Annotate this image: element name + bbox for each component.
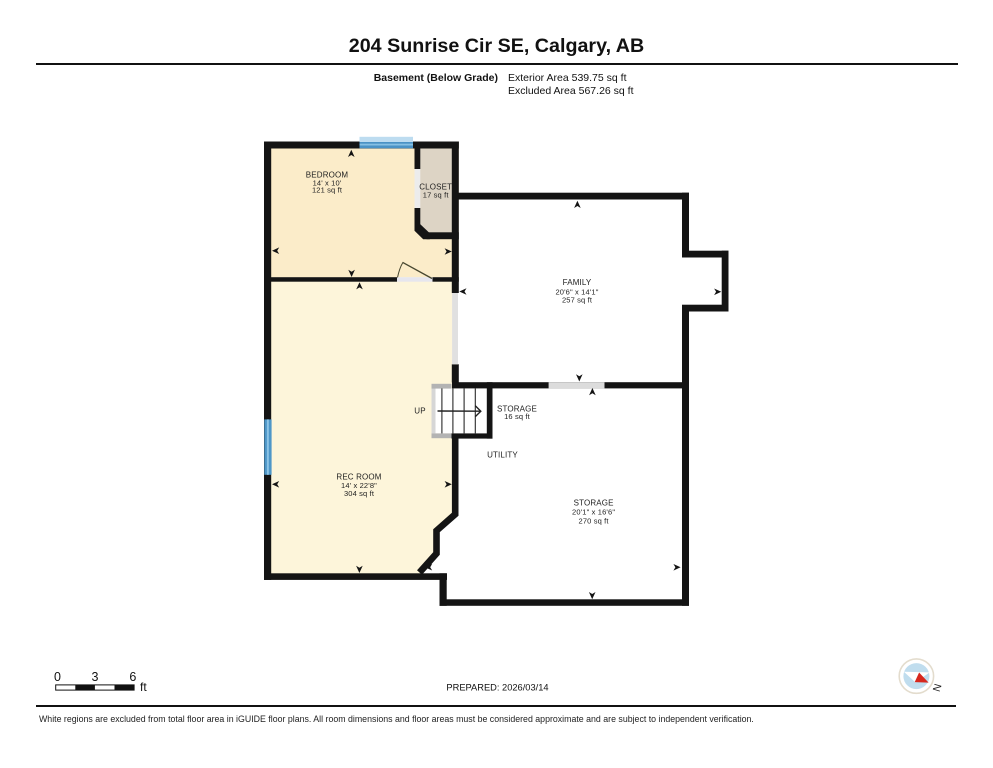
svg-text:20'1" x 16'6": 20'1" x 16'6" (572, 508, 615, 517)
svg-text:N: N (930, 682, 944, 693)
svg-text:ft: ft (140, 680, 147, 694)
svg-text:16 sq ft: 16 sq ft (504, 412, 531, 421)
svg-text:17 sq ft: 17 sq ft (423, 191, 450, 200)
svg-text:121 sq ft: 121 sq ft (312, 186, 343, 195)
svg-text:UTILITY: UTILITY (487, 451, 518, 460)
svg-text:PREPARED: 2026/03/14: PREPARED: 2026/03/14 (446, 683, 548, 693)
svg-text:0: 0 (54, 670, 61, 684)
svg-text:FAMILY: FAMILY (563, 278, 592, 287)
svg-text:6: 6 (129, 670, 136, 684)
svg-text:UP: UP (414, 407, 425, 416)
svg-text:304 sq ft: 304 sq ft (344, 489, 375, 498)
svg-text:270 sq ft: 270 sq ft (579, 517, 610, 526)
svg-text:STORAGE: STORAGE (574, 498, 614, 507)
svg-text:3: 3 (92, 670, 99, 684)
svg-text:257 sq ft: 257 sq ft (562, 295, 593, 304)
